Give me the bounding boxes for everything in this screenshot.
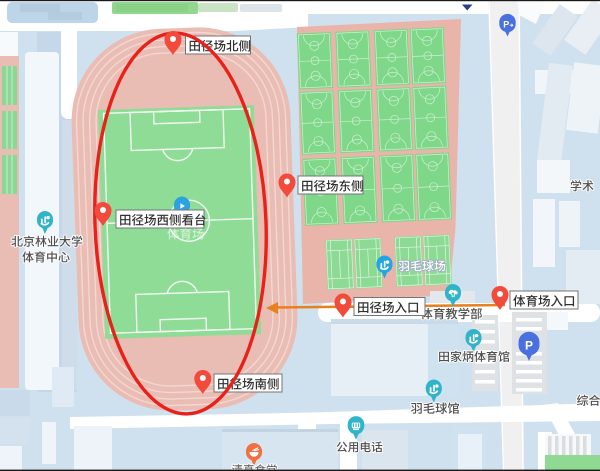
svg-text:P: P: [525, 339, 533, 353]
svg-text:P: P: [503, 19, 509, 29]
